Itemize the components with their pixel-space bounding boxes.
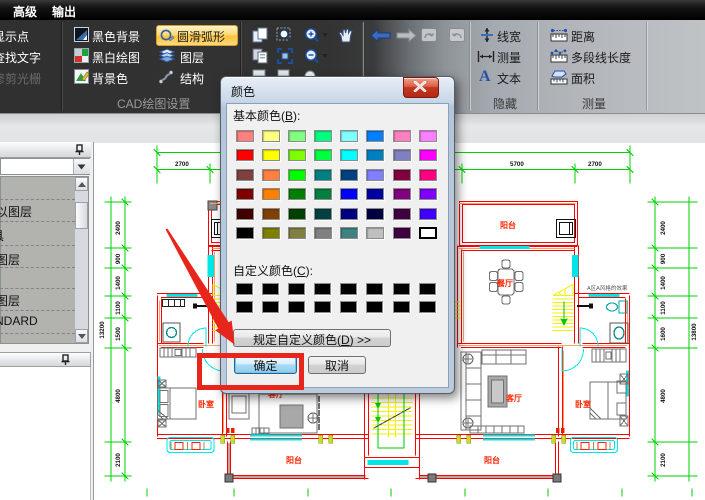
svg-text:13800: 13800 <box>691 323 698 341</box>
svg-text:卧室: 卧室 <box>575 399 591 409</box>
svg-text:2700: 2700 <box>588 161 602 168</box>
svg-text:卧室: 卧室 <box>198 399 214 409</box>
svg-text:1600: 1600 <box>660 327 667 341</box>
svg-text:餐厅: 餐厅 <box>496 278 513 288</box>
svg-text:1100: 1100 <box>660 301 667 315</box>
svg-text:2100: 2100 <box>115 453 122 467</box>
svg-text:900: 900 <box>115 253 122 264</box>
svg-text:4800: 4800 <box>660 389 667 403</box>
svg-text:1400: 1400 <box>660 276 667 290</box>
svg-text:阳台: 阳台 <box>484 455 500 465</box>
svg-text:2700: 2700 <box>175 161 189 168</box>
svg-text:5700: 5700 <box>510 161 524 168</box>
svg-text:4800: 4800 <box>115 389 122 403</box>
svg-text:2400: 2400 <box>115 221 122 235</box>
svg-text:客厅: 客厅 <box>505 393 522 403</box>
svg-text:1100: 1100 <box>115 301 122 315</box>
svg-text:阳台: 阳台 <box>500 220 516 230</box>
svg-text:13200: 13200 <box>99 321 106 339</box>
svg-text:A区A风格的效果: A区A风格的效果 <box>587 284 628 292</box>
svg-text:阳台: 阳台 <box>286 455 302 465</box>
svg-text:2100: 2100 <box>660 453 667 467</box>
svg-text:2400: 2400 <box>660 221 667 235</box>
svg-text:1400: 1400 <box>115 276 122 290</box>
svg-text:900: 900 <box>660 253 667 264</box>
svg-text:1500: 1500 <box>115 327 122 341</box>
